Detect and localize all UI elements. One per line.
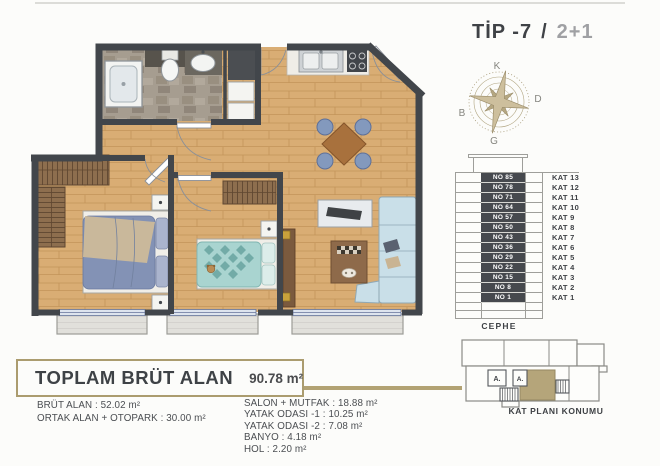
area-list-left: BRÜT ALAN : 52.02 m² ORTAK ALAN + OTOPAR…	[37, 399, 206, 425]
floor-label: KAT 3	[552, 273, 575, 283]
facade-caption: CEPHE	[455, 321, 543, 331]
floor-row: NO 1KAT 1	[455, 293, 579, 303]
floor-row: NO 50KAT 8	[455, 223, 579, 233]
area-list-right: SALON + MUTFAK : 18.88 m² YATAK ODASI -1…	[244, 398, 377, 455]
unit-no: NO 8	[481, 283, 525, 293]
kitchen	[287, 47, 369, 75]
compass-east-label: D	[534, 94, 541, 105]
windows	[59, 310, 401, 316]
unit-no: NO 57	[481, 213, 525, 223]
unit-no: NO 78	[481, 183, 525, 193]
area-item: YATAK ODASI -1 : 10.25 m²	[244, 409, 377, 420]
floor-row: NO 64KAT 10	[455, 203, 579, 213]
shower	[105, 61, 142, 107]
compass-south-label: G	[490, 136, 498, 147]
core-a-label: A.	[494, 376, 501, 383]
title-separator: /	[541, 21, 548, 44]
unit-no: NO 85	[481, 173, 525, 183]
unit-no: NO 64	[481, 203, 525, 213]
floor-label: KAT 7	[552, 233, 575, 243]
unit-no: NO 71	[481, 193, 525, 203]
floor-row: NO 71KAT 11	[455, 193, 579, 203]
floor-row: NO 36KAT 6	[455, 243, 579, 253]
tv-console	[318, 200, 372, 227]
floor-label: KAT 9	[552, 213, 575, 223]
compass-west-label: B	[459, 108, 466, 119]
area-item: BANYO : 4.18 m²	[244, 432, 377, 443]
unit-no: NO 36	[481, 243, 525, 253]
floor-row: NO 22KAT 4	[455, 263, 579, 273]
floor-label: KAT 8	[552, 223, 575, 233]
floor-row: NO 43KAT 7	[455, 233, 579, 243]
area-item: SALON + MUTFAK : 18.88 m²	[244, 398, 377, 409]
duct-shaft	[228, 49, 255, 80]
floor-label: KAT 4	[552, 263, 575, 273]
unit-no: NO 50	[481, 223, 525, 233]
bathroom-door	[177, 123, 211, 128]
floor-row: NO 57KAT 9	[455, 213, 579, 223]
room-count-label: 2+1	[557, 21, 594, 44]
balconies	[57, 314, 403, 334]
rug	[331, 241, 367, 283]
scan-artifact-line	[35, 2, 625, 4]
floor-row: NO 8KAT 2	[455, 283, 579, 293]
floor-row: NO 78KAT 12	[455, 183, 579, 193]
sink-vanity	[185, 49, 222, 75]
area-item: ORTAK ALAN + OTOPARK : 30.00 m²	[37, 412, 206, 425]
unit-no: NO 29	[481, 253, 525, 263]
area-item: YATAK ODASI -2 : 7.08 m²	[244, 421, 377, 432]
unit-no: NO 1	[481, 293, 525, 303]
dining-set	[317, 119, 371, 169]
floor-row-empty	[455, 311, 579, 319]
unit-no: NO 43	[481, 233, 525, 243]
sliding-door-unit	[281, 229, 295, 307]
floor-label: KAT 1	[552, 293, 575, 303]
brochure-page: TİP -7 / 2+1 K D B G NO 85KAT 13 NO 78KA…	[0, 0, 660, 466]
toilet	[162, 49, 179, 81]
stove	[347, 50, 367, 72]
total-area-title: TOPLAM BRÜT ALAN	[35, 367, 233, 389]
floor-label: KAT 11	[552, 193, 579, 203]
double-bed	[83, 211, 169, 293]
floor-plan	[25, 35, 465, 345]
floor-label: KAT 10	[552, 203, 579, 213]
compass-north-label: K	[494, 61, 501, 72]
floor-label: KAT 13	[552, 173, 579, 183]
core-b-label: A.	[517, 376, 524, 383]
floor-label: KAT 2	[552, 283, 575, 293]
bedroom2-door	[178, 176, 211, 181]
floor-row: NO 15KAT 3	[455, 273, 579, 283]
roof-cap	[473, 157, 523, 173]
floor-location-diagram: A. A.	[452, 336, 612, 412]
elevation-grid: NO 85KAT 13 NO 78KAT 12 NO 71KAT 11 NO 6…	[455, 172, 579, 319]
unit-no: NO 22	[481, 263, 525, 273]
floor-label: KAT 6	[552, 243, 575, 253]
floor-label: KAT 12	[552, 183, 579, 193]
unit-connector-line	[304, 386, 462, 390]
total-area-value: 90.78 m²	[249, 371, 303, 386]
floor-label: KAT 5	[552, 253, 575, 263]
area-item: BRÜT ALAN : 52.02 m²	[37, 399, 206, 412]
single-bed	[197, 239, 277, 289]
page-title: TİP -7 / 2+1	[472, 21, 594, 44]
area-item: HOL : 2.20 m²	[244, 444, 377, 455]
unit-no: NO 15	[481, 273, 525, 283]
floor-row: NO 29KAT 5	[455, 253, 579, 263]
floor-row-empty	[455, 303, 579, 311]
teddy-bear	[207, 265, 216, 273]
type-label: TİP -7	[472, 21, 532, 44]
wardrobe	[223, 181, 276, 204]
location-caption: KAT PLANI KONUMU	[450, 406, 660, 416]
compass-rose: K D B G	[452, 52, 552, 152]
total-area-box: TOPLAM BRÜT ALAN 90.78 m²	[16, 359, 304, 397]
floor-row: NO 85KAT 13	[455, 173, 579, 183]
